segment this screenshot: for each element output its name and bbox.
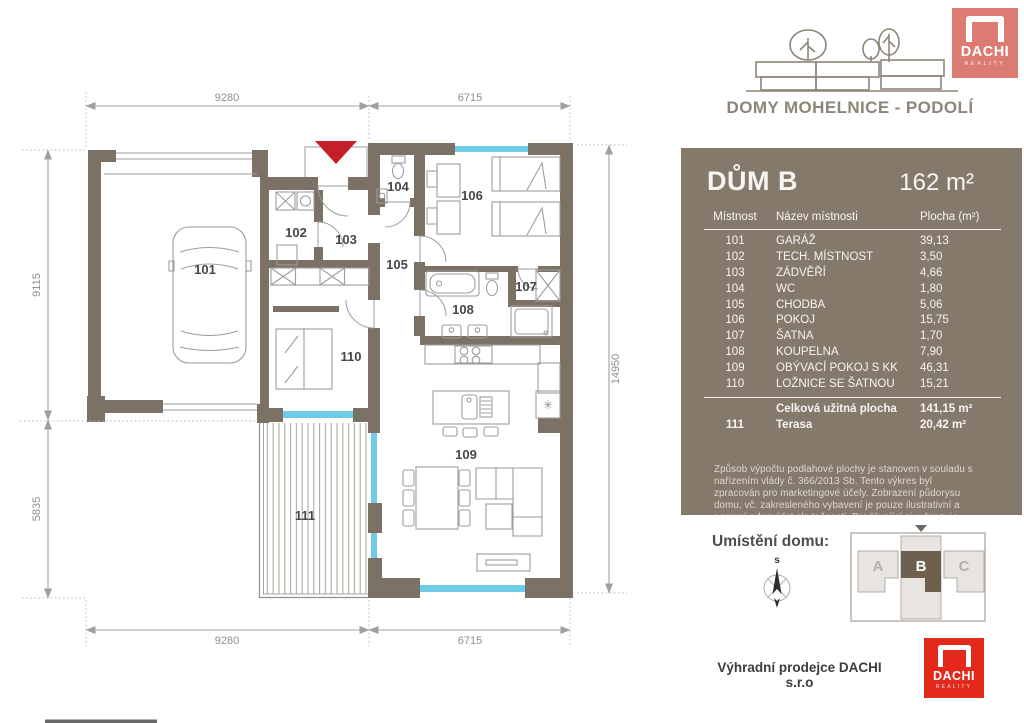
dim-right: 14950 <box>610 354 622 385</box>
boiler-symbol: ✳ <box>543 398 553 412</box>
floorplan-page: ✳ 101 102 103 104 105 106 107 108 109 11… <box>0 0 1024 723</box>
room-label-111: 111 <box>295 508 315 523</box>
col-area: Plocha (m²) <box>908 210 1001 229</box>
compass-icon: s <box>755 550 799 614</box>
empty-cell <box>704 397 766 417</box>
brand-tagline: REALITY <box>924 684 984 690</box>
room-label-101: 101 <box>194 262 216 277</box>
table-row: 109OBÝVACÍ POKOJ S KK46,31 <box>704 361 1001 377</box>
summary-total-row: Celková užitná plocha 141,15 m² <box>704 397 1001 417</box>
dim-left-bottom: 5835 <box>31 497 43 521</box>
location-diagram: A B C <box>849 522 989 624</box>
total-label: Celková užitná plocha <box>766 397 908 417</box>
room-label-103: 103 <box>335 232 357 247</box>
dachi-logo-bottom: DACHI REALITY <box>924 638 984 698</box>
table-row: 107ŠATNA1,70 <box>704 329 1001 345</box>
house-total-area: 162 m² <box>899 169 974 197</box>
table-row: 110LOŽNICE SE ŠATNOU15,21 <box>704 377 1001 397</box>
room-label-104: 104 <box>387 179 409 194</box>
table-row: 101GARÁŽ39,13 <box>704 229 1001 249</box>
house-b-label: B <box>916 558 927 575</box>
room-label-107: 107 <box>515 279 537 294</box>
table-row: 102TECH. MÍSTNOST3,50 <box>704 250 1001 266</box>
table-row: 104WC1,80 <box>704 282 1001 298</box>
summary-terrace-row: 111 Terasa 20,42 m² <box>704 418 1001 434</box>
room-table: Místnost Název místnosti Plocha (m²) 101… <box>704 210 1001 434</box>
info-panel: DŮM B 162 m² Místnost Název místnosti Pl… <box>681 148 1022 515</box>
house-title: DŮM B <box>707 166 798 197</box>
room-label-106: 106 <box>461 188 483 203</box>
dim-bottom-right: 6715 <box>458 635 482 647</box>
terrace-value: 20,42 m² <box>908 418 1001 434</box>
dim-top-right: 6715 <box>458 92 482 104</box>
house-a-label: A <box>873 558 884 575</box>
dachi-arch-icon <box>966 16 1004 42</box>
terrace-label: Terasa <box>766 418 908 434</box>
doors <box>318 186 538 328</box>
bedroom110-furniture <box>271 268 369 389</box>
room-label-102: 102 <box>285 225 307 240</box>
total-value: 141,15 m² <box>908 397 1001 417</box>
dachi-logo-top: DACHI REALITY <box>952 8 1018 78</box>
garage-door-lines <box>104 153 257 410</box>
bedroom106-furniture <box>427 157 560 236</box>
table-row: 108KOUPELNA7,90 <box>704 345 1001 361</box>
seller-text: Výhradní prodejce DACHI s.r.o <box>702 660 897 690</box>
dim-left-top: 9115 <box>31 273 43 297</box>
panel-head: DŮM B 162 m² <box>681 148 1022 197</box>
terrace-number: 111 <box>704 418 766 434</box>
col-room: Místnost <box>704 210 766 229</box>
table-header-row: Místnost Název místnosti Plocha (m²) <box>704 210 1001 229</box>
houses-illustration <box>730 16 960 108</box>
compass-north-letter: s <box>774 555 780 566</box>
living-room-furniture <box>403 467 542 571</box>
room-label-109: 109 <box>455 447 477 462</box>
dachi-arch-icon <box>938 645 971 667</box>
table-row: 105CHODBA5,06 <box>704 298 1001 314</box>
dim-bottom-left: 9280 <box>215 635 239 647</box>
closet107-wardrobe <box>536 270 560 301</box>
col-name: Název místnosti <box>766 210 908 229</box>
car <box>169 227 251 363</box>
disclaimer-text: Způsob výpočtu podlahové plochy je stano… <box>714 464 978 515</box>
brand-name: DACHI <box>952 44 1018 60</box>
project-title: DOMY MOHELNICE - PODOLÍ <box>700 98 1000 118</box>
brand-tagline: REALITY <box>952 61 1018 67</box>
table-row: 103ZÁDVĚŘÍ4,66 <box>704 266 1001 282</box>
floor-plan: ✳ 101 102 103 104 105 106 107 108 109 11… <box>0 0 660 723</box>
brand-name: DACHI <box>924 669 984 683</box>
house-b-marker <box>915 525 927 532</box>
room-label-105: 105 <box>386 257 408 272</box>
room-label-108: 108 <box>452 302 474 317</box>
room-label-110: 110 <box>341 349 362 364</box>
house-c-label: C <box>959 558 970 575</box>
cropped-artifact <box>45 720 157 723</box>
location-label: Umístění domu: <box>712 533 829 551</box>
dim-top-left: 9280 <box>215 92 239 104</box>
table-row: 106POKOJ15,75 <box>704 313 1001 329</box>
